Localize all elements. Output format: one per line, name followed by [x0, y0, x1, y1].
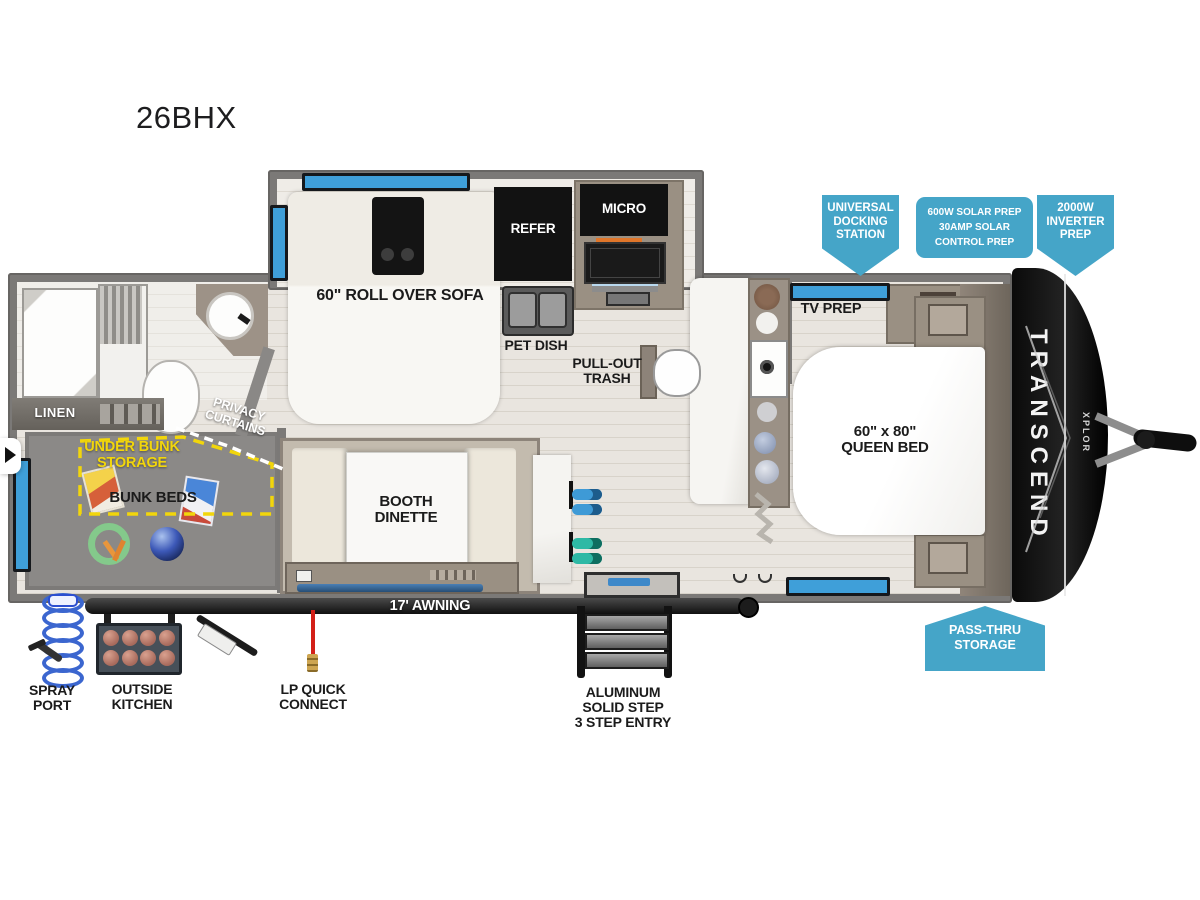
- step-tread-1: [585, 614, 669, 631]
- island-counter: [690, 278, 750, 504]
- refer-label: REFER: [498, 222, 568, 237]
- sofa-cupholder-1: [381, 248, 394, 261]
- stove-drawer: [606, 292, 650, 306]
- carousel-arrow-icon[interactable]: [5, 447, 16, 463]
- step-rail-left: [577, 606, 585, 678]
- dinette-base-vent: [430, 570, 476, 580]
- bunk-side-window: [13, 458, 31, 572]
- sofa-label: 60" ROLL OVER SOFA: [302, 287, 498, 304]
- shower-curtain: [100, 286, 142, 344]
- bedroom-bottom-window: [786, 577, 890, 596]
- pet-dish-bowl-right: [538, 292, 567, 328]
- island-bowl-gray: [757, 402, 777, 422]
- queen-bed-label: 60" x 80" QUEEN BED: [823, 424, 947, 456]
- bathroom-wardrobe: [22, 288, 98, 398]
- island-bowl-blue-1: [754, 432, 776, 454]
- lp-quick-connect-label: LP QUICK CONNECT: [268, 682, 358, 712]
- sofa-cupholder-2: [401, 248, 414, 261]
- hitch-jack: [1142, 438, 1188, 443]
- stool-teal-1: [572, 538, 602, 549]
- under-bunk-storage-label: UNDER BUNK STORAGE: [76, 440, 188, 471]
- burger-patty: [122, 630, 138, 646]
- pull-out-trash-bin: [653, 349, 701, 397]
- stove-burner-knobs: [592, 284, 658, 292]
- stool-blue-1: [572, 489, 602, 500]
- linen-label: LINEN: [16, 406, 94, 420]
- nightstand-top-inset: [928, 304, 968, 336]
- island-plate-white: [756, 312, 778, 334]
- pull-out-trash-label: PULL-OUT TRASH: [568, 356, 646, 386]
- burger-patty: [159, 650, 175, 666]
- burger-patty: [103, 650, 119, 666]
- nightstand-bottom-inset: [928, 542, 968, 574]
- slideout-top-window: [302, 173, 470, 191]
- awning-label: 17' AWNING: [355, 599, 505, 615]
- island-sink-drain: [760, 360, 774, 374]
- outside-kitchen-griddle: [96, 623, 182, 675]
- burger-patty: [159, 630, 175, 646]
- brand-sub-text: XPLOR: [1077, 412, 1091, 482]
- universal-docking-callout: UNIVERSAL DOCKING STATION: [822, 195, 899, 276]
- bedroom-top-window: [790, 283, 890, 301]
- pet-dish-bowl-left: [508, 292, 537, 328]
- bathroom-sink: [206, 292, 254, 340]
- step-tread-2: [585, 633, 669, 650]
- dinette-side-counter: [533, 455, 571, 583]
- burger-patty: [103, 630, 119, 646]
- sofa-table: [372, 197, 424, 275]
- brand-logo-text: TRANSCEND: [1018, 286, 1052, 586]
- cap-accent-line: [1064, 274, 1066, 596]
- micro-label: MICRO: [582, 202, 666, 217]
- stool-teal-2: [572, 553, 602, 564]
- step-tread-3: [585, 652, 669, 669]
- bunk-beds-label: BUNK BEDS: [105, 490, 201, 506]
- island-bowl-blue-2: [755, 460, 779, 484]
- linen-drawers: [100, 404, 160, 424]
- lp-connector: [307, 654, 318, 672]
- dinette-base-button: [296, 570, 312, 582]
- inverter-prep-callout: 2000W INVERTER PREP: [1037, 195, 1114, 276]
- awning-rail-cap: [738, 597, 759, 618]
- lp-line: [311, 610, 315, 656]
- burger-patty: [122, 650, 138, 666]
- solar-prep-callout: 600W SOLAR PREP 30AMP SOLAR CONTROL PREP: [916, 197, 1033, 258]
- stove-top: [584, 242, 666, 284]
- floorplan-page: 26BHX LINEN 60" ROLL OVER SOFA REFER MIC…: [0, 0, 1200, 900]
- stool-blue-2: [572, 504, 602, 515]
- entry-door-glass: [608, 578, 650, 586]
- awning-led-strip: [297, 584, 483, 592]
- spray-port-label: SPRAY PORT: [12, 683, 92, 713]
- entry-steps-label: ALUMINUM SOLID STEP 3 STEP ENTRY: [572, 685, 674, 730]
- dinette-bench-right: [464, 448, 516, 566]
- stove-handle: [596, 238, 642, 242]
- burger-patty: [140, 630, 156, 646]
- outside-kitchen-label: OUTSIDE KITCHEN: [96, 682, 188, 712]
- tv-prep-label: TV PREP: [794, 302, 868, 318]
- island-plate-brown: [754, 284, 780, 310]
- booth-dinette-label: BOOTH DINETTE: [347, 494, 465, 526]
- pet-dish-label: PET DISH: [498, 338, 574, 353]
- spray-port-hose: [42, 598, 84, 688]
- dinette-bench-left: [292, 448, 348, 566]
- page-title: 26BHX: [136, 100, 237, 136]
- slideout-side-window: [270, 205, 288, 281]
- hitch-coupler: [1137, 431, 1155, 449]
- toy-ball: [150, 527, 184, 561]
- burger-patty: [140, 650, 156, 666]
- pass-thru-storage-callout: PASS-THRU STORAGE: [925, 606, 1045, 671]
- dog-bone-toy: [48, 594, 78, 607]
